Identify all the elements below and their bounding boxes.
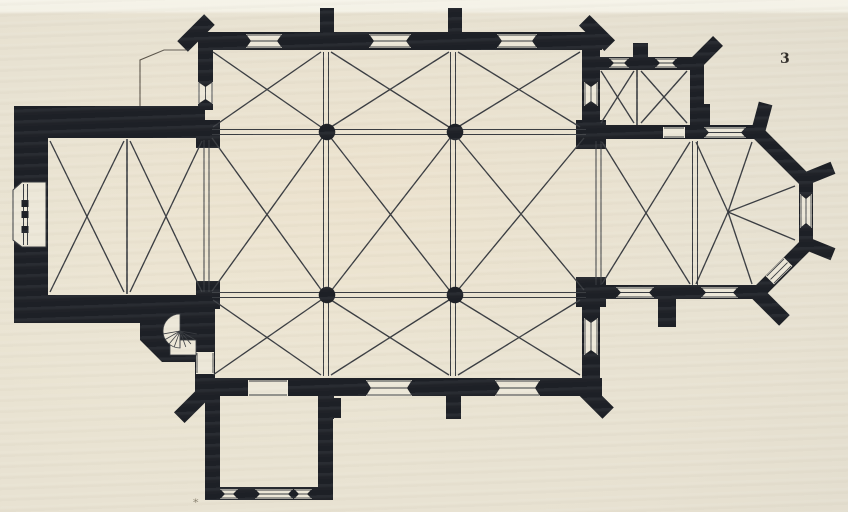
chapel-door — [248, 380, 288, 396]
south-window-2 — [495, 380, 540, 396]
figure-number: 3 — [780, 51, 790, 67]
north-window-2 — [369, 34, 411, 48]
north-window-1 — [246, 34, 282, 48]
sacristy-ne-corner-buttress — [689, 36, 723, 70]
nave-column-ne — [447, 124, 464, 141]
chapel-south-window-2 — [255, 489, 293, 499]
tower-north-wall — [14, 106, 205, 138]
choir-north-window — [704, 127, 746, 138]
apse-east-south-buttress — [805, 238, 836, 261]
choir-south-window-1 — [616, 287, 654, 298]
sacristy-window-2 — [655, 58, 677, 68]
vault-rib — [728, 212, 795, 240]
stair-door — [196, 352, 214, 374]
apse-se-buttress — [752, 288, 789, 325]
nave-column-nw — [319, 124, 336, 141]
aisle-east-window-north — [584, 82, 598, 106]
vault-rib — [728, 212, 752, 284]
apse-ne-buttress — [752, 102, 773, 133]
plan-svg — [0, 0, 848, 512]
sacristy-buttress — [633, 43, 648, 59]
vault-rib — [696, 142, 728, 212]
apse-east-window — [800, 194, 812, 228]
aisle-east-window-south — [584, 318, 598, 355]
north-buttress-1 — [320, 8, 334, 34]
aisle-west-window — [198, 82, 213, 104]
west-portal-jamb-block — [22, 226, 29, 233]
south-aisle-west-wall — [195, 295, 215, 392]
choir-south-window-2 — [701, 287, 738, 298]
scanned-plan-page: 3 * — [0, 0, 848, 512]
annex-outline — [140, 50, 187, 108]
chapel-west-wall — [205, 390, 220, 500]
west-portal-jamb-block — [22, 211, 29, 218]
caption-mark: * — [193, 497, 199, 507]
vault-rib — [728, 142, 752, 212]
stair-door — [196, 352, 214, 374]
chapel-south-window-3 — [294, 489, 312, 499]
north-buttress-2 — [448, 8, 462, 34]
chapel-door — [248, 380, 288, 396]
choir-south-buttress — [658, 297, 676, 327]
chapel-south-window-1 — [220, 489, 238, 499]
north-window-3 — [497, 34, 537, 48]
apse-north-buttress — [694, 104, 710, 127]
sacristy-window-1 — [609, 58, 629, 68]
aisle-sw-corner-buttress — [174, 387, 210, 423]
apse-east-north-buttress — [805, 162, 836, 185]
south-buttress-2 — [446, 396, 461, 419]
vault-rib — [728, 186, 795, 212]
nave-column-sw — [319, 287, 336, 304]
west-portal-jamb-block — [22, 200, 29, 207]
west-portal — [13, 182, 46, 247]
vault-rib — [696, 212, 728, 284]
nave-column-se — [447, 287, 464, 304]
south-window-1 — [366, 380, 412, 396]
chapel-buttress-stub — [331, 398, 341, 418]
sacristy-door — [663, 127, 685, 138]
sacristy-door — [663, 127, 685, 138]
